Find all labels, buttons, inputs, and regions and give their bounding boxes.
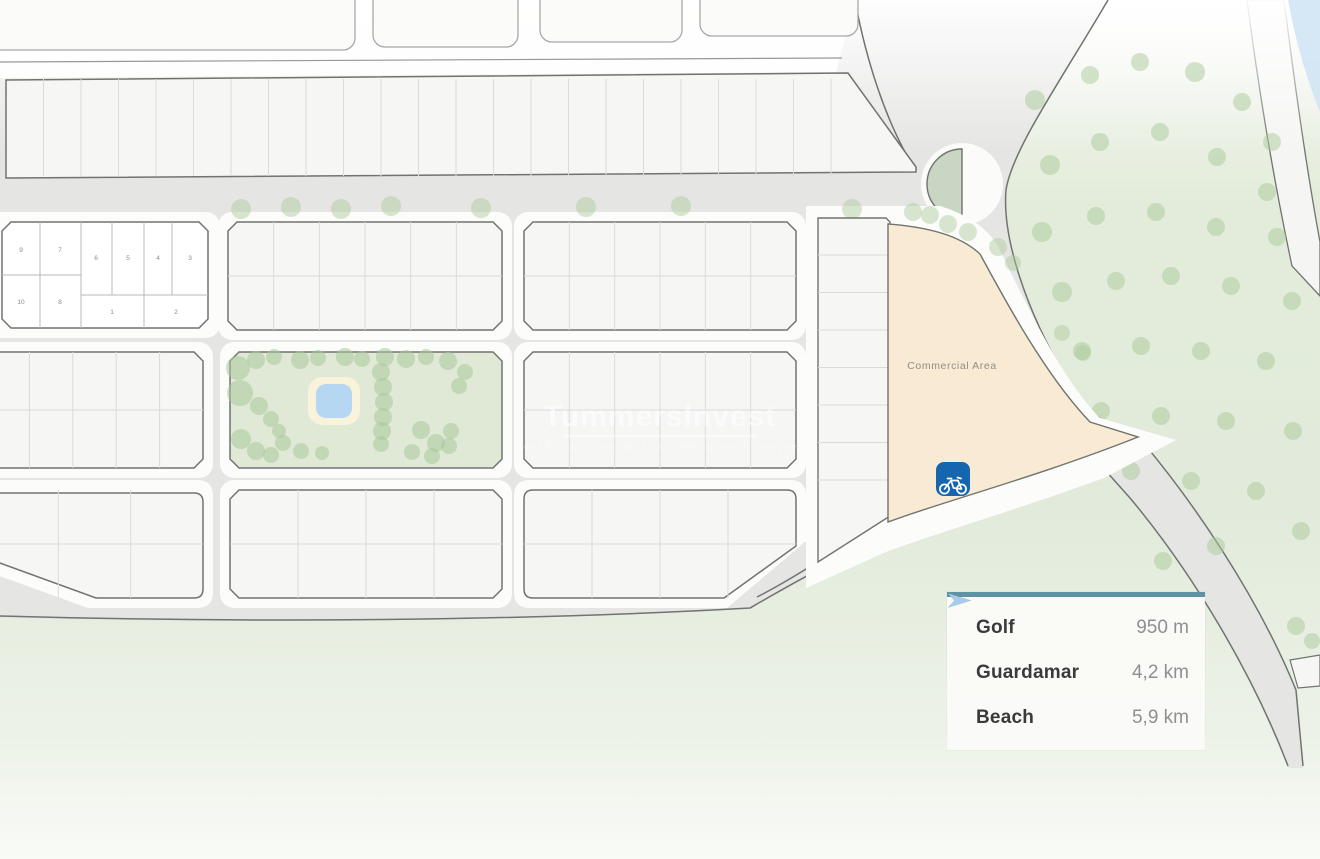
plot-number: 3	[188, 255, 192, 262]
tree-icon	[247, 351, 265, 369]
tree-icon	[315, 446, 329, 460]
tree-icon	[263, 447, 279, 463]
legend-label: Beach	[976, 707, 1034, 729]
tree-icon	[1025, 90, 1045, 110]
tree-icon	[1107, 272, 1125, 290]
narrow-plot-strip	[818, 218, 890, 562]
tree-icon	[336, 348, 354, 366]
tree-icon	[451, 378, 467, 394]
tree-icon	[1222, 277, 1240, 295]
legend-row-guardamar: Guardamar4,2 km	[963, 650, 1189, 695]
tree-icon	[1207, 218, 1225, 236]
tree-icon	[441, 438, 457, 454]
tree-icon	[443, 423, 459, 439]
tree-icon	[1081, 66, 1099, 84]
tree-icon	[1284, 422, 1302, 440]
plot-number: 10	[17, 299, 25, 306]
tree-icon	[275, 435, 291, 451]
tree-icon	[1182, 472, 1200, 490]
plot-number: 8	[58, 299, 62, 306]
plot-number: 2	[174, 309, 178, 316]
plot-number: 1	[110, 309, 114, 316]
tree-icon	[247, 442, 265, 460]
plot-number: 5	[126, 255, 130, 262]
legend-row-golf: Golf950 m	[963, 605, 1189, 650]
tree-icon	[939, 215, 957, 233]
legend-distance-value: 5,9 km	[1132, 707, 1189, 729]
tree-icon	[1292, 522, 1310, 540]
tree-icon	[1208, 148, 1226, 166]
swimming-pool	[316, 384, 352, 418]
tree-icon	[1147, 203, 1165, 221]
tree-icon	[439, 352, 457, 370]
tree-icon	[231, 199, 251, 219]
tree-icon	[231, 429, 251, 449]
plot-number: 7	[58, 247, 62, 254]
tree-icon	[331, 199, 351, 219]
plot-number: 6	[94, 255, 98, 262]
tree-icon	[1257, 352, 1275, 370]
tree-icon	[1087, 207, 1105, 225]
tree-icon	[291, 351, 309, 369]
commercial-area-label: Commercial Area	[907, 360, 997, 372]
tree-icon	[1263, 133, 1281, 151]
tree-icon	[1005, 255, 1021, 271]
tree-icon	[457, 364, 473, 380]
tree-icon	[354, 351, 370, 367]
tree-icon	[293, 443, 309, 459]
tree-icon	[471, 198, 491, 218]
tree-icon	[281, 197, 301, 217]
tree-icon	[1283, 292, 1301, 310]
tree-icon	[424, 448, 440, 464]
tree-icon	[1162, 267, 1180, 285]
plot-number: 4	[156, 255, 160, 262]
tree-icon	[1152, 407, 1170, 425]
tree-icon	[959, 223, 977, 241]
tree-icon	[1132, 337, 1150, 355]
plot-number: 9	[19, 247, 23, 254]
tree-icon	[397, 350, 415, 368]
tree-icon	[1154, 552, 1172, 570]
tree-icon	[1258, 183, 1276, 201]
tree-icon	[1185, 62, 1205, 82]
site-plan-map: 97654310812 Commercial Area TummersInves…	[0, 0, 1320, 859]
tree-icon	[1075, 345, 1091, 361]
tree-icon	[418, 349, 434, 365]
tree-icon	[1207, 537, 1225, 555]
tree-icon	[1054, 325, 1070, 341]
tree-icon	[904, 203, 922, 221]
tree-icon	[373, 436, 389, 452]
tree-icon	[1247, 482, 1265, 500]
tree-icon	[227, 380, 253, 406]
tree-icon	[412, 421, 430, 439]
tree-icon	[842, 199, 862, 219]
tree-icon	[1192, 342, 1210, 360]
legend-distance-value: 950 m	[1136, 617, 1189, 639]
tree-icon	[381, 196, 401, 216]
distance-legend: Golf950 mGuardamar4,2 kmBeach5,9 km	[947, 592, 1205, 750]
legend-label: Golf	[976, 617, 1015, 639]
tree-icon	[1217, 412, 1235, 430]
tree-icon	[226, 356, 250, 380]
tree-icon	[1032, 222, 1052, 242]
tree-icon	[671, 196, 691, 216]
bicycle-icon	[936, 462, 970, 496]
plot-strip	[6, 73, 916, 178]
tree-icon	[250, 397, 268, 415]
tree-icon	[1304, 633, 1320, 649]
tree-icon	[1268, 228, 1286, 246]
tree-icon	[989, 238, 1007, 256]
legend-label: Guardamar	[976, 662, 1079, 684]
tree-icon	[1233, 93, 1251, 111]
tree-icon	[576, 197, 596, 217]
tree-icon	[1091, 133, 1109, 151]
tree-icon	[1040, 155, 1060, 175]
tree-icon	[1131, 53, 1149, 71]
legend-rows: Golf950 mGuardamar4,2 kmBeach5,9 km	[947, 597, 1205, 750]
tree-icon	[266, 349, 282, 365]
tree-icon	[921, 206, 939, 224]
legend-distance-value: 4,2 km	[1132, 662, 1189, 684]
legend-row-beach: Beach5,9 km	[963, 695, 1189, 740]
tree-icon	[1052, 282, 1072, 302]
tree-icon	[404, 444, 420, 460]
tree-icon	[1151, 123, 1169, 141]
tree-icon	[310, 350, 326, 366]
tree-icon	[1287, 617, 1305, 635]
